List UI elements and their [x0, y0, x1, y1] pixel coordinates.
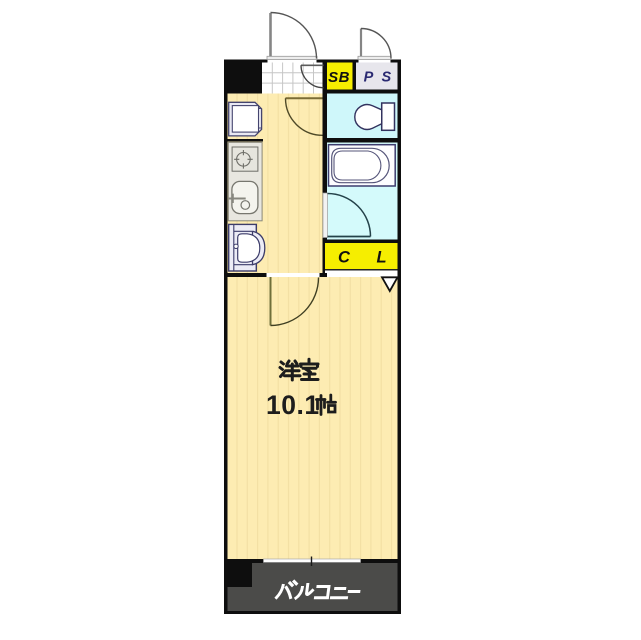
svg-text:10.1: 10.1	[266, 390, 320, 420]
svg-text:P: P	[364, 70, 374, 86]
svg-text:C: C	[338, 249, 351, 267]
svg-text:SB: SB	[328, 69, 350, 86]
svg-text:S: S	[381, 70, 391, 86]
svg-text:L: L	[376, 249, 386, 267]
